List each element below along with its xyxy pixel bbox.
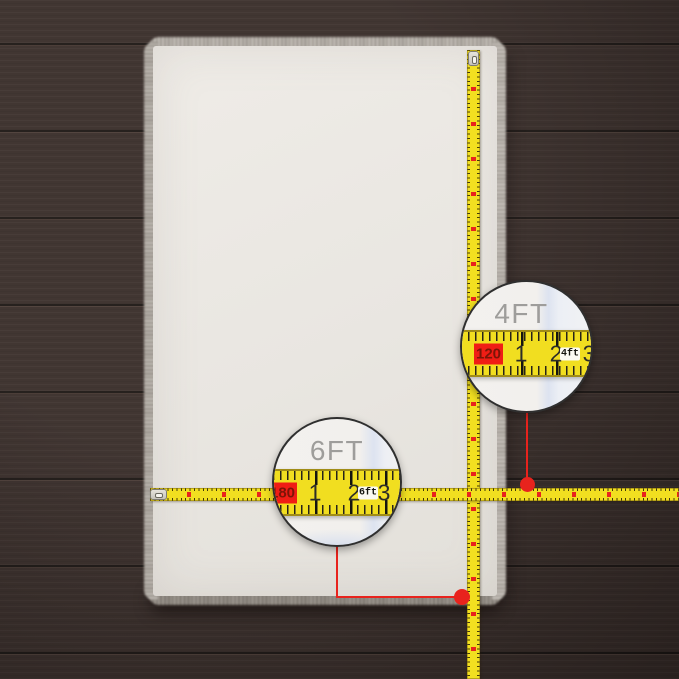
connector-dot-6ft [454,589,470,605]
connector-line-6ft-vertical [336,546,338,598]
connector-line-4ft [526,412,528,484]
tape-number: 1 [309,479,322,506]
tape-unit-badge: 4ft [560,347,580,360]
tape-end-clip-left [150,489,167,500]
connector-line-6ft-horizontal [336,596,464,598]
connector-dot-4ft [520,477,535,492]
tape-number: 1 [515,340,528,367]
horizontal-measuring-tape [150,488,679,501]
tape-cm-badge: 120 [474,343,503,364]
dimension-label-4ft: 4FT [460,298,586,330]
magnifier-circle-4ft: 4FT 120 1 2 4ft 3 [460,280,593,413]
tape-number: 3 [378,479,391,506]
magnified-tape-6ft: 180 1 2 6ft 3 [272,469,402,516]
dimension-label-6ft: 6FT [274,435,400,467]
magnifier-circle-6ft: 6FT 180 1 2 6ft 3 [272,417,402,547]
magnified-tape-4ft: 120 1 2 4ft 3 [460,330,593,377]
tape-unit-badge: 6ft [358,486,378,499]
tape-cm-badge: 180 [272,482,297,503]
product-photo-rug: 4FT 120 1 2 4ft 3 6FT 180 1 2 6ft 3 [0,0,679,679]
tape-end-clip-top [468,51,479,66]
